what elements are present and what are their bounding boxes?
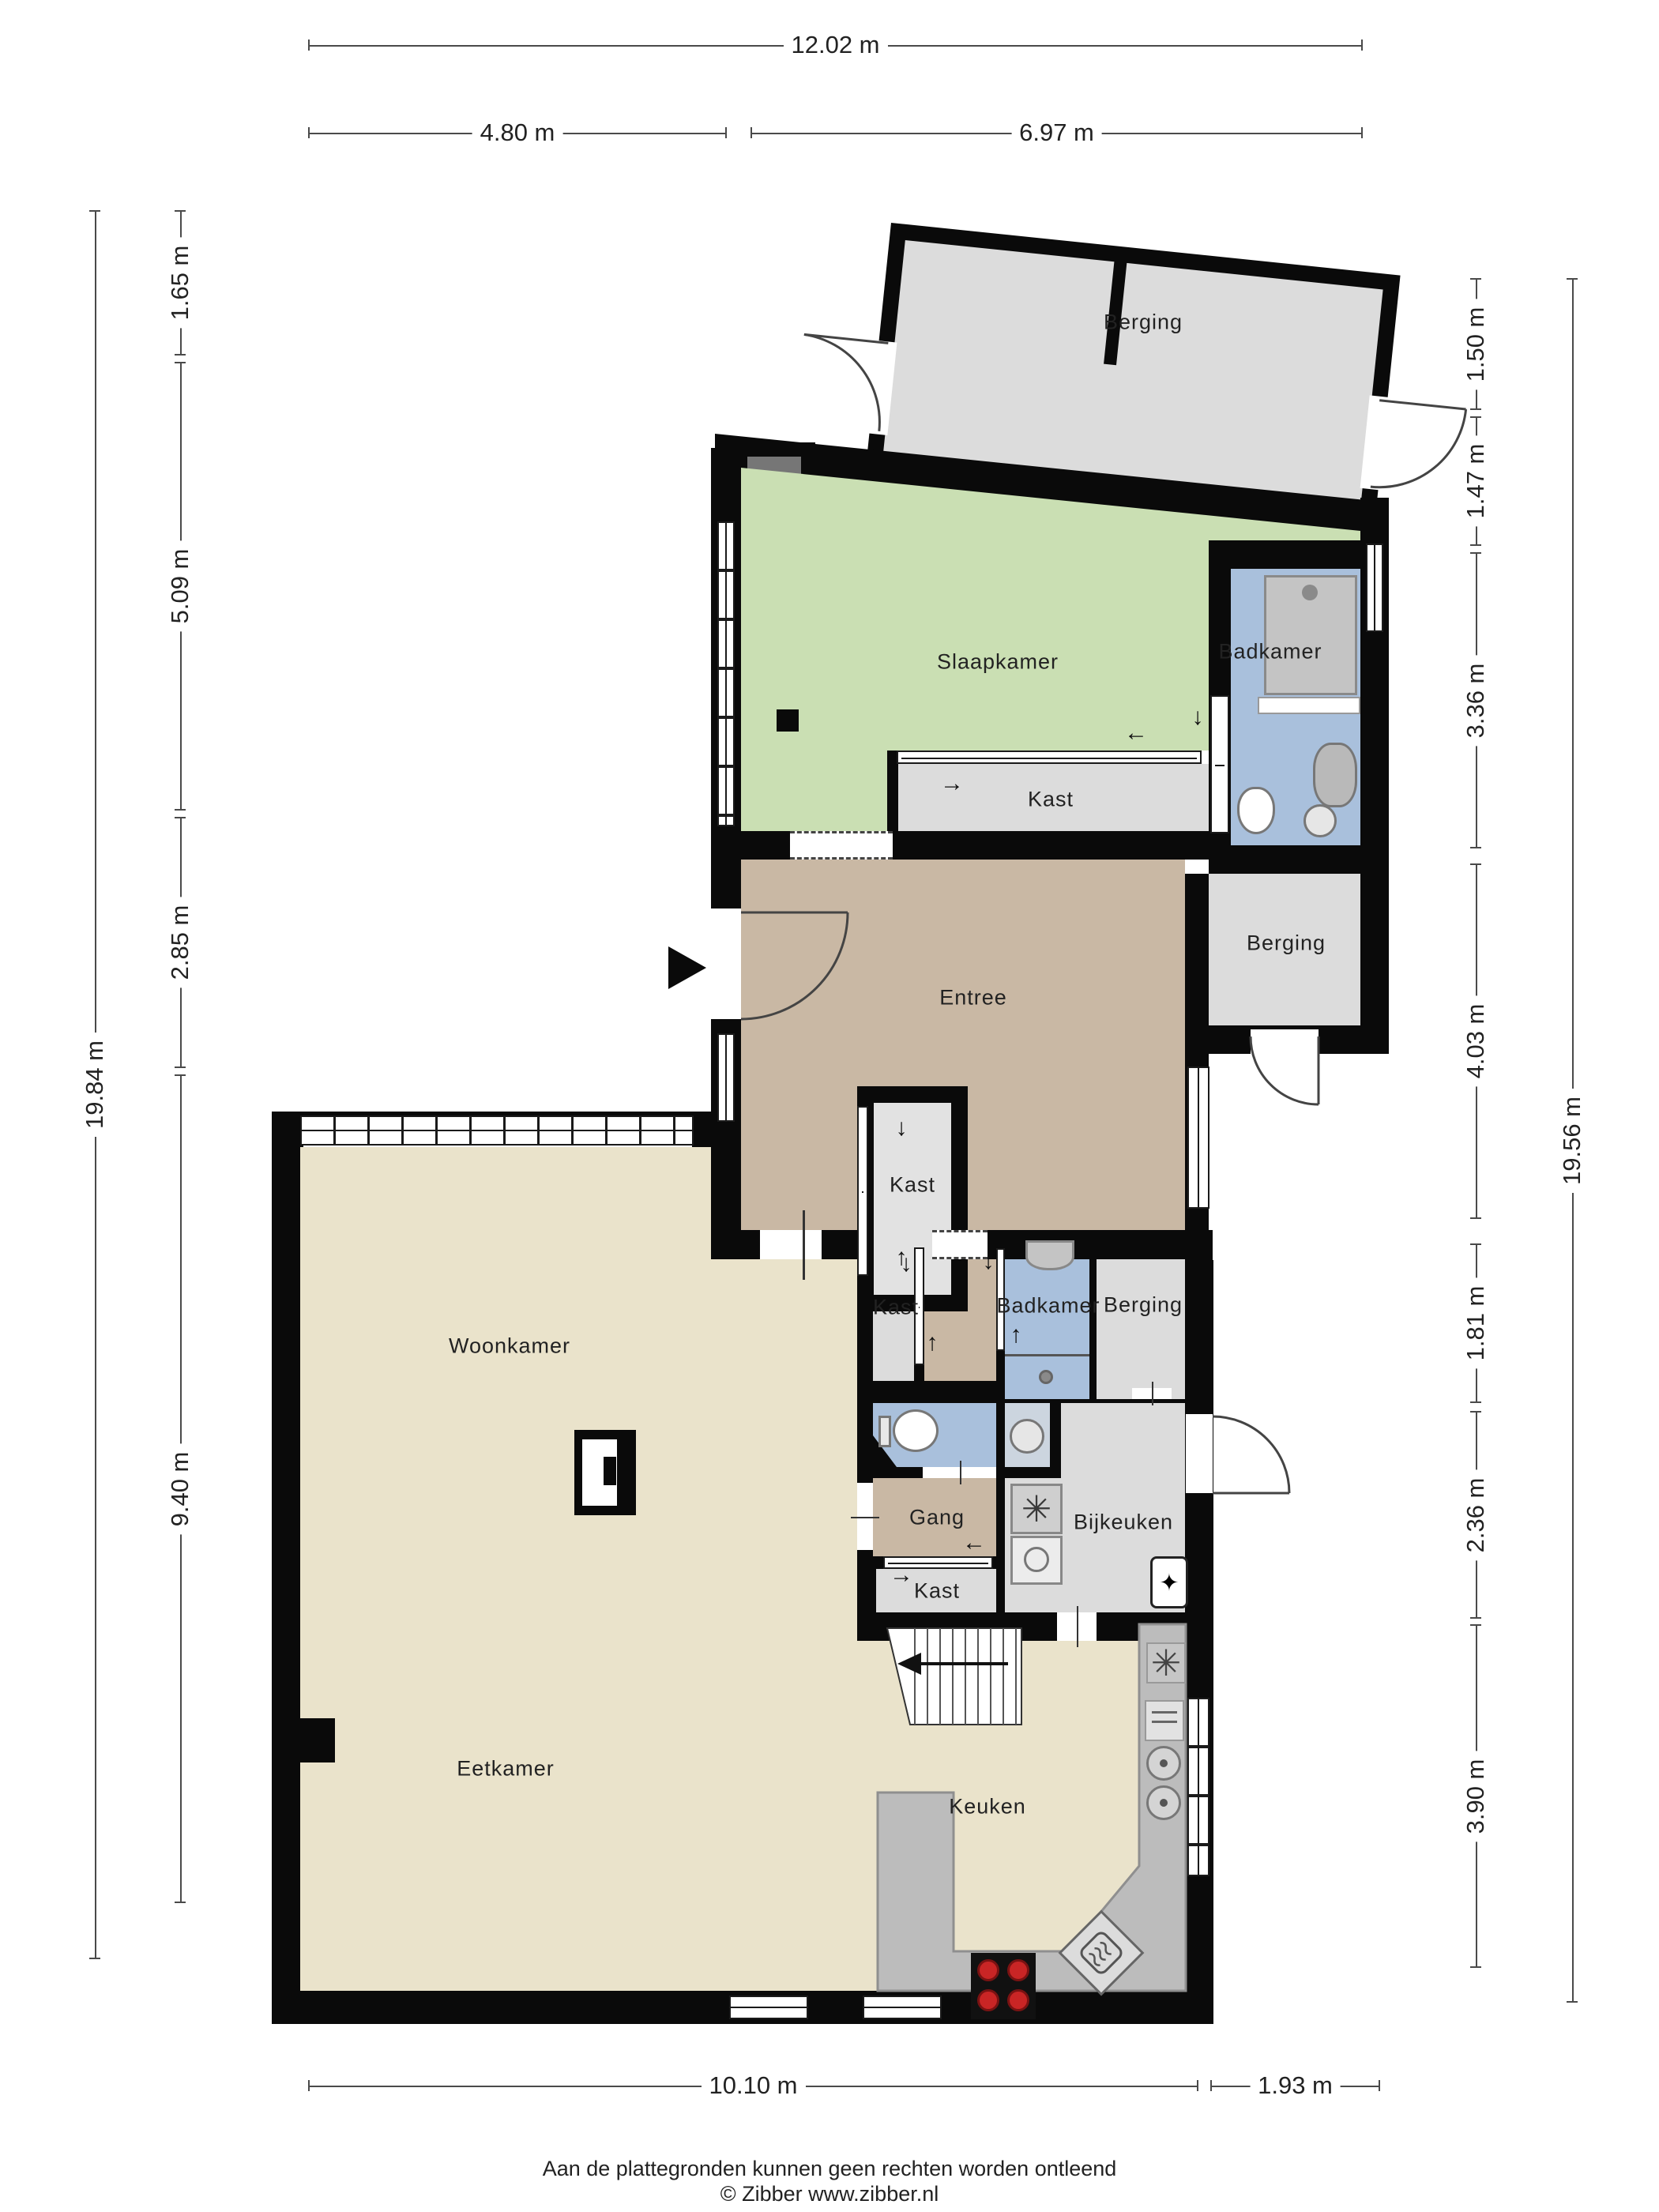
dim-right-seg-0: 1.50 m bbox=[1462, 278, 1489, 410]
sink-drain-1 bbox=[1160, 1759, 1168, 1767]
detail-layer bbox=[0, 0, 1659, 2212]
slide-arrow-kast-slaapkamer-out: ← bbox=[1124, 720, 1148, 747]
dim-left-seg-1: 5.09 m bbox=[167, 362, 194, 811]
dim-top-left: 4.80 m bbox=[308, 119, 727, 146]
dim-right-seg-5: 2.36 m bbox=[1462, 1411, 1489, 1619]
dim-bottom-left: 10.10 m bbox=[308, 2072, 1198, 2099]
back-door-arc bbox=[1213, 1416, 1289, 1493]
footer-copyright: © Zibber www.zibber.nl bbox=[720, 2182, 939, 2206]
front-door-arc bbox=[741, 912, 848, 1019]
sink-badkamer-boven bbox=[1313, 743, 1357, 807]
dim-right-seg-3: 4.03 m bbox=[1462, 863, 1489, 1219]
dim-left-seg-0: 1.65 m bbox=[167, 210, 194, 355]
slide-arrow-badkamer-beneden-down: ↓ bbox=[983, 1248, 995, 1275]
toilet-basin bbox=[1010, 1419, 1044, 1454]
shower-screen-line bbox=[1005, 1354, 1089, 1356]
label-slaapkamer: Slaapkamer bbox=[937, 650, 1059, 675]
dim-left-seg-3: 9.40 m bbox=[167, 1074, 194, 1903]
entrance-arrow-icon bbox=[668, 946, 706, 989]
slide-arrow-kast-gang: → bbox=[890, 1562, 913, 1589]
label-kast-midden: Kast bbox=[873, 1296, 919, 1320]
burner-2 bbox=[1007, 1959, 1029, 1981]
dim-right-seg-2: 3.36 m bbox=[1462, 552, 1489, 848]
slide-arrow-kast-entree-down: ↓ bbox=[896, 1115, 908, 1142]
label-kast-gang: Kast bbox=[914, 1579, 960, 1604]
label-eetkamer: Eetkamer bbox=[457, 1757, 555, 1781]
footer-disclaimer: Aan de plattegronden kunnen geen rechten… bbox=[543, 2157, 1117, 2181]
toilet-tank bbox=[878, 1416, 891, 1447]
dim-left-seg-2: 2.85 m bbox=[167, 817, 194, 1068]
shower-head-beneden-icon bbox=[1039, 1370, 1053, 1384]
label-entree: Entree bbox=[939, 986, 1007, 1010]
label-keuken: Keuken bbox=[949, 1795, 1026, 1819]
label-berging-midden: Berging bbox=[1104, 1293, 1183, 1318]
floorplan-canvas: ✳ ✦ ✳ ← → ↓ ↓ ↑ ↓ ↑ ↓ ↑ ← → Berging Slaa… bbox=[0, 0, 1659, 2212]
slide-arrow-gang-strip: ↑ bbox=[927, 1330, 939, 1356]
sink-drain-2 bbox=[1160, 1799, 1168, 1807]
slide-arrow-badkamer-boven: ↓ bbox=[1192, 704, 1204, 731]
toilet-badkamer-boven bbox=[1237, 787, 1275, 834]
fireplace-step bbox=[604, 1457, 616, 1485]
slide-arrow-kast-midden: ↓ bbox=[901, 1251, 912, 1277]
burner-1 bbox=[977, 1959, 999, 1981]
slide-arrow-kast-slaapkamer-in: → bbox=[940, 770, 964, 797]
label-woonkamer: Woonkamer bbox=[449, 1334, 570, 1359]
boiler-flame-icon: ✦ bbox=[1159, 1570, 1179, 1597]
dim-top-total: 12.02 m bbox=[308, 32, 1363, 58]
label-berging-top: Berging bbox=[1104, 310, 1183, 335]
label-bijkeuken: Bijkeuken bbox=[1074, 1510, 1173, 1535]
dim-top-right: 6.97 m bbox=[750, 119, 1363, 146]
dim-right-seg-1: 1.47 m bbox=[1462, 416, 1489, 546]
dim-left-total: 19.84 m bbox=[81, 210, 108, 1959]
slide-arrow-gang: ← bbox=[962, 1529, 986, 1556]
dim-right-total: 19.56 m bbox=[1559, 278, 1586, 2003]
burner-4 bbox=[1007, 1989, 1029, 2011]
dim-right-seg-6: 3.90 m bbox=[1462, 1624, 1489, 1968]
stairs bbox=[887, 1628, 1021, 1725]
shower-head-icon bbox=[1302, 585, 1318, 600]
shower-shelf bbox=[1258, 697, 1360, 714]
berging-entree-door-arc bbox=[1251, 1036, 1319, 1104]
fan-icon: ✳ bbox=[1021, 1488, 1052, 1530]
label-badkamer-boven: Badkamer bbox=[1218, 640, 1322, 664]
label-kast-entree: Kast bbox=[890, 1173, 935, 1198]
dim-bottom-right: 1.93 m bbox=[1210, 2072, 1380, 2099]
sink-badkamer-beneden bbox=[1025, 1240, 1074, 1270]
dishwasher-line2 bbox=[1152, 1721, 1177, 1723]
toilet-bowl bbox=[893, 1409, 939, 1452]
fontein-badkamer-boven bbox=[1303, 804, 1337, 837]
label-berging-entree: Berging bbox=[1247, 931, 1326, 956]
label-gang: Gang bbox=[909, 1506, 965, 1530]
extractor-fan-icon: ✳ bbox=[1151, 1642, 1182, 1684]
dishwasher-line1 bbox=[1152, 1711, 1177, 1714]
label-badkamer-beneden: Badkamer bbox=[996, 1294, 1100, 1319]
label-kast-slaapkamer: Kast bbox=[1028, 788, 1074, 812]
dim-right-seg-4: 1.81 m bbox=[1462, 1243, 1489, 1403]
burner-3 bbox=[977, 1989, 999, 2011]
slide-arrow-badkamer-beneden-up: ↑ bbox=[1010, 1322, 1022, 1349]
washing-machine-drum-icon bbox=[1024, 1547, 1049, 1572]
